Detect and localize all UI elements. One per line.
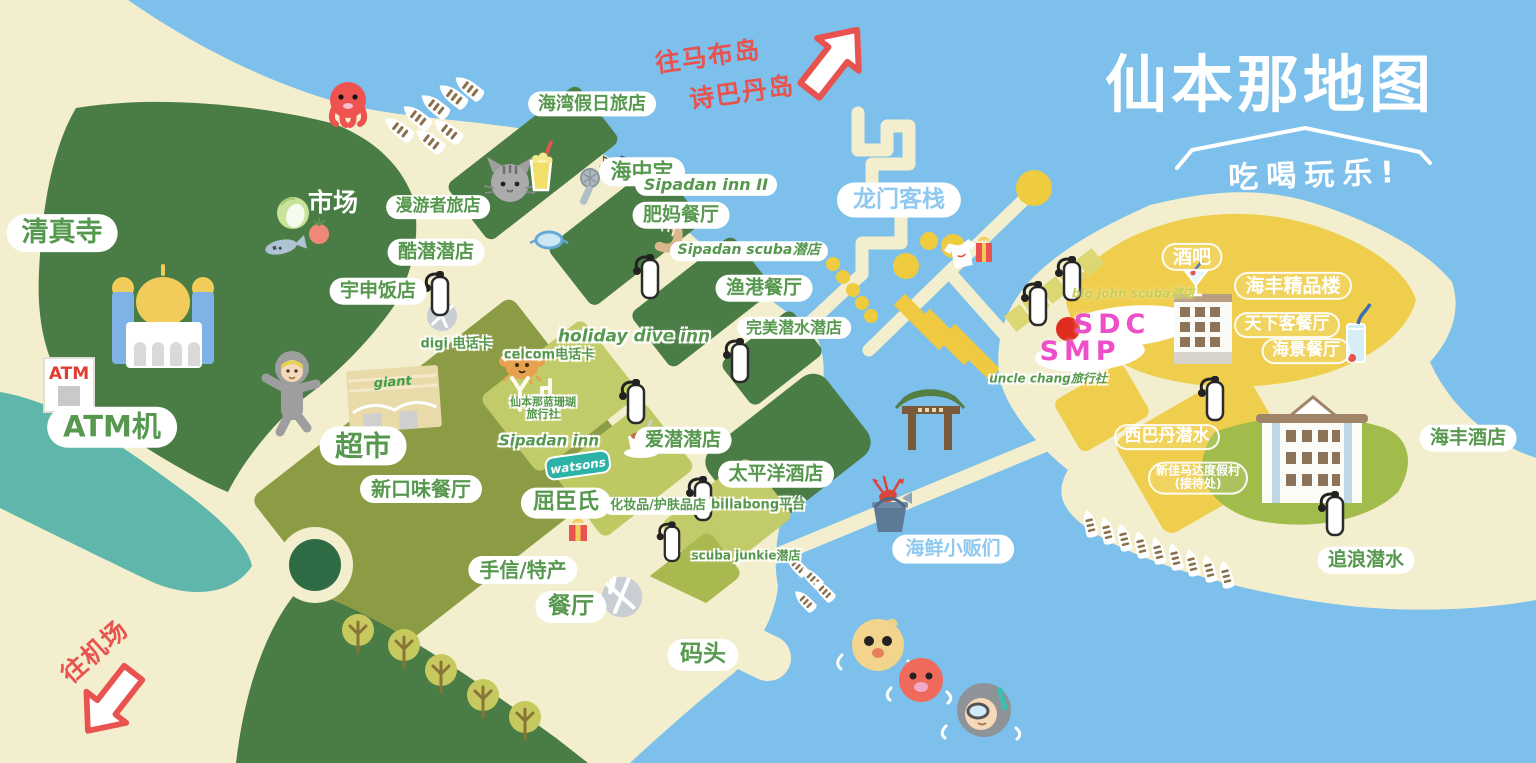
map-label-haifengjiudian: 海丰酒店 [1420,425,1517,452]
map-label-celcom: celcom电话卡 [504,349,594,364]
map-label-quchenshi: 屈臣氏 [521,488,611,519]
map-label-feima: 肥妈餐厅 [633,202,730,229]
map-label-lanshanhu: 仙本那蓝珊瑚旅行社 [510,397,576,422]
map-label-yugang: 渔港餐厅 [716,275,813,302]
map-label-bigjohn: big john scuba潜店 [1072,287,1195,300]
map-label-aiqian: 爱潜潜店 [635,427,732,454]
map-label-smp: SMP [1040,337,1121,367]
map-label-to-airport: 往机场 [56,615,134,689]
map-label-lanshanhu-line-1: 旅行社 [510,409,576,421]
map-label-billabong: billabong平台 [711,499,805,514]
map-label-manyouzhe: 漫游者旅店 [386,195,490,219]
map-label-huazhuangpin: 化妆品/护肤品店 [603,497,713,515]
map-label-wanmei: 完美潜水潜店 [737,317,851,339]
map-label-shouxin: 手信/特产 [468,556,577,584]
map-label-canting: 餐厅 [535,591,606,623]
map-label-to-mabul-1: 往马布岛 [654,36,763,78]
semporna-illustrated-map: ATM giant watsons [0,0,1536,763]
map-label-yushen: 宇申饭店 [330,278,427,305]
map-label-sipadan-inn: Sipadan inn [499,433,599,450]
map-label-haixian: 海鲜小贩们 [892,535,1014,564]
map-label-xinjiamada: 新佳马达度假村(接待处) [1148,462,1248,495]
map-label-longmen: 龙门客栈 [837,183,961,218]
map-label-digi: digi 电话卡 [420,338,491,353]
map-label-matou: 码头 [667,639,738,671]
map-label-jiuba: 酒吧 [1161,243,1222,271]
map-label-sipadan-inn-2: Sipadan inn II [635,174,777,196]
map-label-chaoshi: 超市 [320,426,407,465]
map-label-to-mabul-2: 诗巴丹岛 [688,72,797,114]
map-label-haijing: 海景餐厅 [1262,338,1351,364]
map-label-zhuilang: 追浪潜水 [1318,547,1415,574]
map-label-qingzhensi: 清真寺 [7,214,118,252]
map-label-xinjiamada-line-1: (接待处) [1156,478,1240,491]
map-label-xibadan: 西巴丹潜水 [1114,424,1220,450]
map-label-atm-ji: ATM机 [47,407,177,448]
map-label-kuqian: 酷潜潜店 [388,239,485,266]
map-label-scuba-junkie: scuba junkie潜店 [691,549,800,562]
map-label-taipingyang: 太平洋酒店 [718,461,834,488]
map-label-shichang: 市场 [308,189,358,217]
map-title: 仙本那地图 [1005,34,1535,124]
map-label-xinkouwei: 新口味餐厅 [360,475,482,503]
map-label-holiday-dive-inn: holiday dive inn [558,327,710,346]
map-label-unclechang: uncle chang旅行社 [989,372,1107,385]
map-label-sipadan-scuba: Sipadan scuba潜店 [670,241,828,261]
map-label-haiwan: 海湾假日旅店 [528,91,656,116]
map-label-haifengjingpin: 海丰精品楼 [1234,272,1352,300]
map-label-tianxiake: 天下客餐厅 [1234,312,1340,338]
